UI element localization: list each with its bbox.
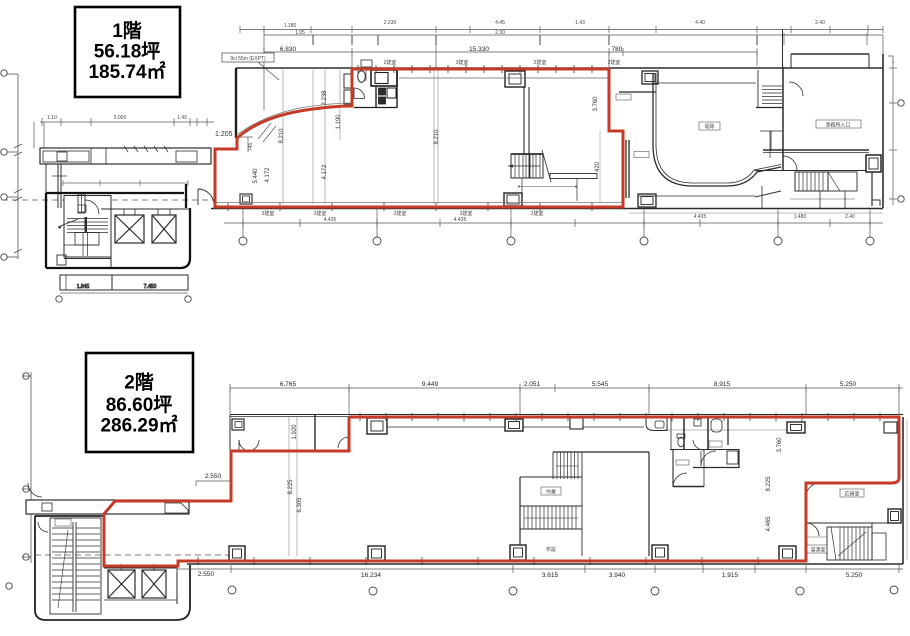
svg-text:3.760: 3.760 xyxy=(593,96,599,112)
svg-text:8.210: 8.210 xyxy=(279,128,285,144)
svg-text:1階: 1階 xyxy=(112,20,142,42)
svg-text:6.830: 6.830 xyxy=(280,46,297,53)
svg-text:8.225: 8.225 xyxy=(766,476,772,492)
svg-text:2階: 2階 xyxy=(124,372,154,394)
svg-text:2.30: 2.30 xyxy=(495,30,505,36)
svg-text:1.915: 1.915 xyxy=(722,572,739,579)
svg-text:745: 745 xyxy=(248,143,254,152)
svg-text:185.74㎡: 185.74㎡ xyxy=(88,60,165,83)
svg-text:8.225: 8.225 xyxy=(288,479,294,495)
svg-text:事務所入口: 事務所入口 xyxy=(825,122,850,129)
svg-text:1.180: 1.180 xyxy=(284,23,297,29)
svg-text:56.18坪: 56.18坪 xyxy=(94,41,161,63)
svg-text:5.000: 5.000 xyxy=(114,115,127,121)
svg-text:1.920: 1.920 xyxy=(292,424,298,440)
svg-text:8.210: 8.210 xyxy=(434,129,440,145)
svg-text:3.940: 3.940 xyxy=(609,572,626,579)
svg-text:堀除: 堀除 xyxy=(704,123,714,130)
svg-text:4.435: 4.435 xyxy=(454,217,467,223)
svg-text:5.440: 5.440 xyxy=(253,168,259,184)
svg-text:1.190: 1.190 xyxy=(336,114,342,130)
svg-text:2.550: 2.550 xyxy=(198,571,215,578)
svg-text:3建室: 3建室 xyxy=(460,210,473,217)
svg-text:2.238: 2.238 xyxy=(322,90,328,106)
svg-text:4.435: 4.435 xyxy=(694,214,707,220)
svg-text:4.40: 4.40 xyxy=(695,20,705,26)
svg-text:9.449: 9.449 xyxy=(422,381,439,388)
svg-text:2建室: 2建室 xyxy=(531,210,544,217)
svg-text:1.05: 1.05 xyxy=(295,30,305,36)
svg-text:1:205: 1:205 xyxy=(215,131,233,138)
svg-text:1.10: 1.10 xyxy=(47,115,57,121)
svg-text:16.234: 16.234 xyxy=(361,572,381,579)
svg-text:2.40: 2.40 xyxy=(845,214,855,220)
svg-text:2.550: 2.550 xyxy=(205,473,222,480)
svg-text:1.845: 1.845 xyxy=(77,284,90,290)
svg-text:9cl 55m (EXPT): 9cl 55m (EXPT) xyxy=(230,56,266,62)
svg-text:780: 780 xyxy=(612,46,623,53)
svg-text:2建室: 2建室 xyxy=(608,59,621,66)
svg-text:3建室: 3建室 xyxy=(456,59,469,66)
svg-text:6.305: 6.305 xyxy=(297,497,303,513)
svg-text:2建室: 2建室 xyxy=(394,210,407,217)
svg-text:2建室: 2建室 xyxy=(534,59,547,66)
svg-text:1.40: 1.40 xyxy=(177,115,187,121)
svg-text:作業: 作業 xyxy=(546,489,556,496)
svg-text:4.465: 4.465 xyxy=(766,516,772,532)
svg-text:3.615: 3.615 xyxy=(542,572,559,579)
svg-text:5.250: 5.250 xyxy=(846,572,863,579)
svg-text:4.45: 4.45 xyxy=(495,20,505,26)
svg-text:5.545: 5.545 xyxy=(592,381,609,388)
svg-text:布設: 布設 xyxy=(546,546,556,553)
svg-text:3建室: 3建室 xyxy=(262,210,275,217)
svg-text:2.230: 2.230 xyxy=(384,20,397,26)
svg-text:4.435: 4.435 xyxy=(324,217,337,223)
svg-text:2建室: 2建室 xyxy=(384,59,397,66)
svg-text:1.480: 1.480 xyxy=(794,214,807,220)
svg-text:2.051: 2.051 xyxy=(524,381,541,388)
svg-text:4.172: 4.172 xyxy=(265,167,271,183)
svg-text:86.60坪: 86.60坪 xyxy=(106,394,173,416)
svg-text:3.760: 3.760 xyxy=(777,437,783,453)
svg-text:6.765: 6.765 xyxy=(280,381,297,388)
svg-text:286.29㎡: 286.29㎡ xyxy=(100,414,177,437)
svg-text:応接室: 応接室 xyxy=(844,491,859,498)
svg-text:8.915: 8.915 xyxy=(714,381,731,388)
svg-text:湯沸室: 湯沸室 xyxy=(810,547,825,554)
svg-text:2.40: 2.40 xyxy=(815,20,825,26)
svg-text:1.43: 1.43 xyxy=(575,20,585,26)
svg-text:5.250: 5.250 xyxy=(840,381,857,388)
svg-text:3建室: 3建室 xyxy=(314,210,327,217)
svg-text:15.330: 15.330 xyxy=(469,46,489,53)
svg-text:4.172: 4.172 xyxy=(322,164,328,180)
svg-text:7.450: 7.450 xyxy=(144,284,157,290)
